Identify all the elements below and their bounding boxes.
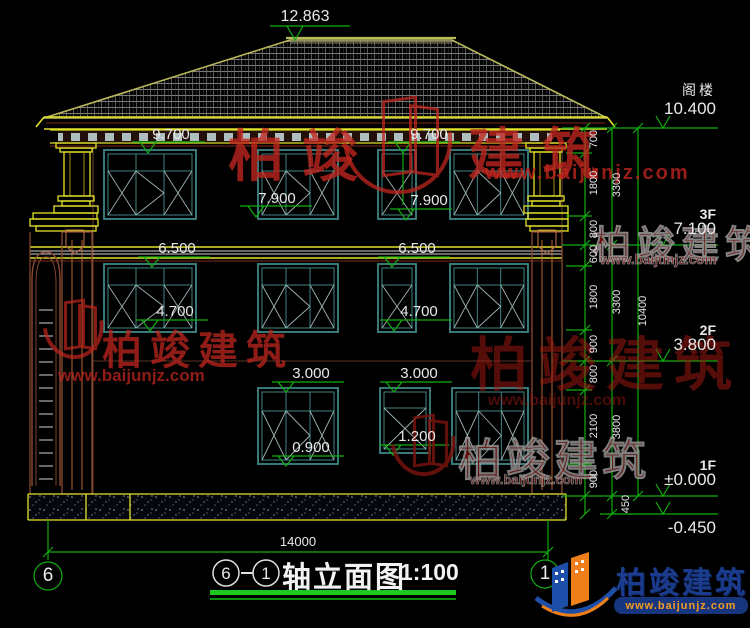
level-1f-value: ±0.000 [644,470,716,490]
overall-width-dim: 14000 [268,534,328,549]
watermark-brand-top-left: 柏竣 [228,112,376,193]
watermark-url-upper-right: www.baijunjz.com [600,252,717,267]
elev-9700-left: 9.700 [142,126,200,143]
left-column [30,143,98,231]
level-ground-value: -0.450 [644,518,716,538]
elev-7900-left: 7.900 [248,190,306,207]
floor-band-6500 [30,247,562,261]
left-pilaster [62,230,92,494]
elev-6500-left: 6.500 [148,240,206,257]
roof [44,38,607,118]
dim-3300b: 3300 [611,284,623,320]
elev-4700-left: 4.700 [146,303,204,320]
dim-450: 450 [620,486,632,522]
plinth [28,494,566,520]
elev-6500-right: 6.500 [388,240,446,257]
left-bay-arch-window [30,232,60,494]
dim-800b: 800 [588,356,600,392]
drawing-scale: 1:100 [400,559,459,586]
title-axis-from: 6 [218,564,234,584]
elev-9700-right: 9.700 [400,126,458,143]
footer-logo-brand: 柏竣建筑 [616,558,748,602]
cad-elevation-screenshot: { "drawing": { "ridge_elevation": "12.86… [0,0,750,628]
watermark-url-mid-right: www.baijunjz.com [488,392,626,410]
title-axis-to: 1 [258,564,274,584]
watermark-logo-left [44,300,102,360]
axis-bubble-left-number: 6 [40,565,56,587]
drawing-title: 轴立面图 [282,554,406,596]
ridge-elevation-text: 12.863 [272,8,338,26]
watermark-url-bottom: www.baijunjz.com [470,472,582,487]
level-attic-value: 10.400 [650,99,716,119]
watermark-logo-bottom [392,415,454,477]
elev-7900-right: 7.900 [400,192,458,209]
level-2f-value: 3.800 [650,335,716,355]
watermark-url-left: www.baijunjz.com [58,366,205,386]
level-attic-label: 阁楼 [656,80,716,100]
dim-10400: 10400 [637,291,649,331]
dim-900b: 900 [588,461,600,497]
dim-600: 600 [588,236,600,272]
dim-1800a: 1800 [588,165,600,201]
dim-3300a: 3300 [611,167,623,203]
dim-2100: 2100 [588,408,600,444]
level-3f-value: 7.100 [650,219,716,239]
elev-4700-right: 4.700 [390,303,448,320]
dim-700: 700 [588,121,600,157]
dim-1800b: 1800 [588,279,600,315]
footer-logo-url: www.baijunjz.com [614,600,748,612]
dim-3800: 3800 [611,409,623,445]
elev-3000-right: 3.000 [390,365,448,382]
axis-bubble-right-number: 1 [537,563,553,585]
elev-0900: 0.900 [282,439,340,456]
elev-3000-left: 3.000 [282,365,340,382]
elev-1200: 1.200 [388,428,446,445]
